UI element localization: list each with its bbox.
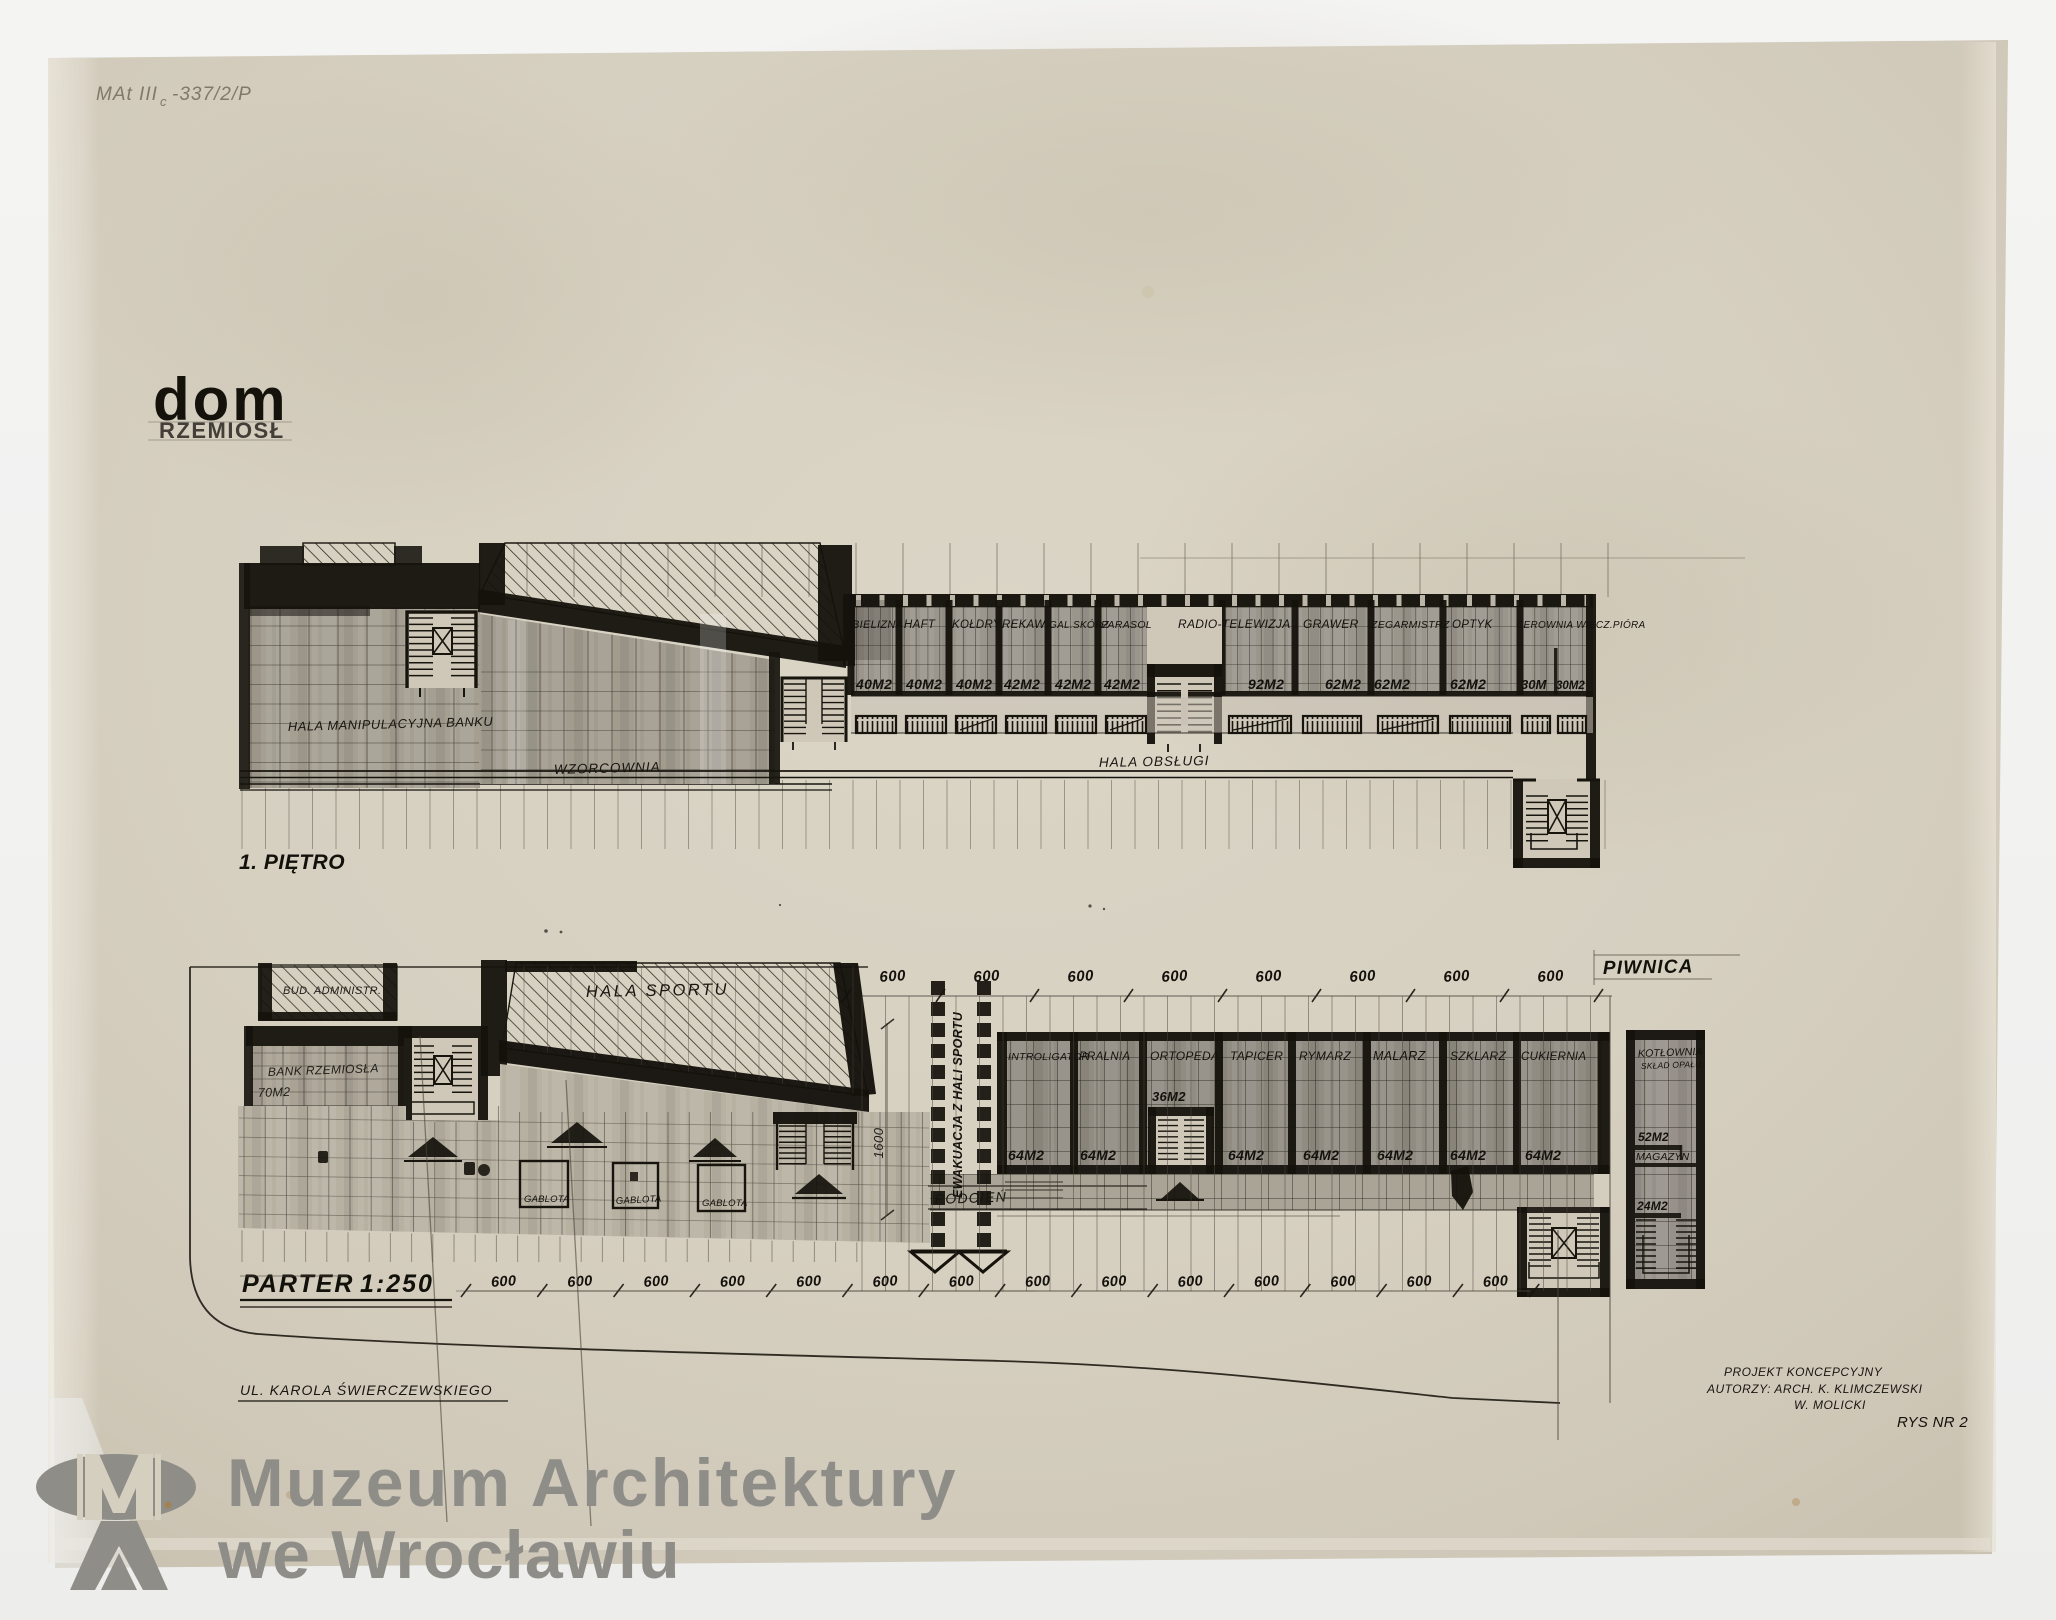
svg-text:600: 600 (948, 1273, 974, 1291)
svg-text:52M2: 52M2 (1638, 1130, 1669, 1144)
svg-text:RYMARZ: RYMARZ (1299, 1049, 1351, 1063)
svg-text:92M2: 92M2 (1248, 676, 1284, 692)
svg-text:24M2: 24M2 (1636, 1199, 1668, 1213)
svg-text:600: 600 (643, 1273, 669, 1291)
svg-text:42M2: 42M2 (1054, 676, 1091, 692)
svg-text:KOŁDRY: KOŁDRY (952, 619, 1002, 631)
svg-text:GABLOTA: GABLOTA (702, 1198, 748, 1209)
svg-text:64M2: 64M2 (1450, 1147, 1486, 1163)
svg-text:W. MOLICKI: W. MOLICKI (1794, 1398, 1866, 1412)
svg-text:600: 600 (796, 1273, 822, 1291)
svg-text:40M2: 40M2 (855, 676, 892, 692)
svg-text:PIWNICA: PIWNICA (1603, 956, 1694, 979)
svg-text:62M2: 62M2 (1325, 676, 1361, 692)
svg-text:UL. KAROLA ŚWIERCZEWSKIEGO: UL. KAROLA ŚWIERCZEWSKIEGO (240, 1381, 493, 1398)
svg-text:OPTYK: OPTYK (1452, 619, 1494, 631)
svg-text:1:250: 1:250 (360, 1270, 434, 1298)
svg-text:64M2: 64M2 (1228, 1147, 1264, 1163)
svg-text:600: 600 (872, 1273, 898, 1291)
svg-text:PARASOL: PARASOL (1101, 619, 1152, 631)
svg-text:64M2: 64M2 (1377, 1147, 1413, 1163)
svg-text:600: 600 (1482, 1273, 1508, 1291)
svg-text:64M2: 64M2 (1080, 1147, 1116, 1163)
svg-text:BIELIZNA: BIELIZNA (852, 619, 903, 631)
svg-text:SZKLARZ: SZKLARZ (1450, 1049, 1506, 1063)
svg-text:62M2: 62M2 (1450, 676, 1486, 692)
svg-text:MALARZ: MALARZ (1373, 1049, 1426, 1063)
svg-text:SKŁAD OPAŁU: SKŁAD OPAŁU (1641, 1059, 1703, 1071)
svg-text:EWAKUACJA Z HALI SPORTU: EWAKUACJA Z HALI SPORTU (951, 1011, 965, 1198)
svg-text:600: 600 (719, 1273, 745, 1291)
svg-text:c: c (160, 94, 167, 109)
svg-text:600: 600 (1025, 1273, 1051, 1291)
svg-text:AUTORZY: ARCH. K. KLIMCZEWSKI: AUTORZY: ARCH. K. KLIMCZEWSKI (1706, 1382, 1923, 1396)
svg-text:PARTER: PARTER (242, 1270, 354, 1298)
svg-text:600: 600 (1443, 967, 1471, 986)
svg-text:ORTOPEDA: ORTOPEDA (1150, 1049, 1219, 1063)
svg-text:36M2: 36M2 (1152, 1089, 1186, 1104)
svg-text:INTROLIGATOR: INTROLIGATOR (1008, 1051, 1090, 1063)
svg-text:600: 600 (879, 967, 907, 986)
svg-text:30M2: 30M2 (1556, 680, 1585, 692)
svg-text:600: 600 (1349, 967, 1377, 986)
svg-text:BUD. ADMINISTR.: BUD. ADMINISTR. (283, 985, 382, 997)
svg-text:RYS NR 2: RYS NR 2 (1897, 1414, 1968, 1431)
svg-text:MAt III: MAt III (96, 84, 158, 105)
svg-text:RADIO-TELEWIZJA: RADIO-TELEWIZJA (1178, 617, 1291, 631)
svg-text:600: 600 (1537, 967, 1565, 986)
svg-text:42M2: 42M2 (1103, 676, 1140, 692)
svg-text:GRAWER: GRAWER (1303, 617, 1359, 631)
svg-text:PROJEKT KONCEPCYJNY: PROJEKT KONCEPCYJNY (1724, 1365, 1883, 1379)
svg-text:ZEGARMISTRZ: ZEGARMISTRZ (1370, 619, 1450, 631)
svg-text:600: 600 (1255, 967, 1283, 986)
svg-text:600: 600 (1177, 1273, 1203, 1291)
svg-text:HAFT: HAFT (904, 619, 936, 631)
svg-text:PRALNIA: PRALNIA (1079, 1051, 1130, 1063)
svg-text:CUKIERNIA: CUKIERNIA (1521, 1051, 1586, 1063)
svg-text:KOTŁOWNIA: KOTŁOWNIA (1638, 1046, 1703, 1060)
svg-text:we Wrocławiu: we Wrocławiu (217, 1517, 681, 1593)
svg-text:40M2: 40M2 (905, 676, 942, 692)
svg-text:40M2: 40M2 (955, 676, 992, 692)
svg-text:600: 600 (1406, 1273, 1432, 1291)
svg-text:600: 600 (1101, 1273, 1127, 1291)
svg-text:MAGAZYN: MAGAZYN (1636, 1151, 1690, 1163)
svg-text:HALA SPORTU: HALA SPORTU (586, 981, 729, 1001)
svg-text:-337/2/P: -337/2/P (172, 84, 252, 105)
svg-text:600: 600 (1067, 967, 1095, 986)
svg-text:GABLOTA: GABLOTA (524, 1194, 570, 1205)
svg-text:30M: 30M (1521, 677, 1547, 692)
svg-text:600: 600 (1330, 1273, 1356, 1291)
svg-text:Muzeum Architektury: Muzeum Architektury (227, 1445, 958, 1521)
svg-text:WZORCOWNIA: WZORCOWNIA (554, 759, 661, 777)
svg-text:PODCIEŃ: PODCIEŃ (935, 1188, 1008, 1207)
svg-text:1. PIĘTRO: 1. PIĘTRO (239, 851, 345, 874)
svg-text:CEROWNIA WIECZ.PIÓRA: CEROWNIA WIECZ.PIÓRA (1516, 618, 1646, 631)
svg-text:600: 600 (490, 1273, 516, 1291)
svg-text:REKAW.: REKAW. (1002, 619, 1049, 631)
svg-text:62M2: 62M2 (1374, 676, 1410, 692)
svg-text:HALA OBSŁUGI: HALA OBSŁUGI (1099, 753, 1210, 770)
svg-text:1600: 1600 (871, 1127, 886, 1158)
svg-text:70M2: 70M2 (258, 1085, 291, 1100)
svg-text:600: 600 (1161, 967, 1189, 986)
svg-text:600: 600 (1253, 1273, 1279, 1291)
svg-text:600: 600 (567, 1273, 593, 1291)
svg-text:42M2: 42M2 (1003, 676, 1040, 692)
